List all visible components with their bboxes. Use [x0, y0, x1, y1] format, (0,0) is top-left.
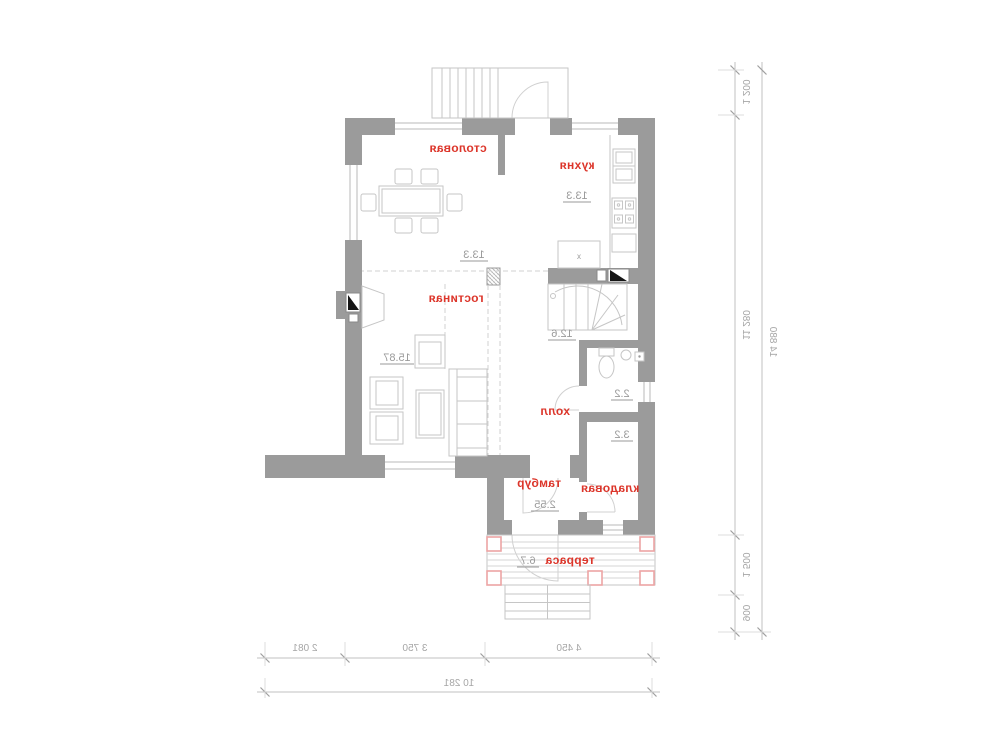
floor-plan-mirrored-canvas: x — [0, 0, 1000, 750]
cabinet — [612, 234, 636, 252]
dining-furniture — [361, 169, 462, 233]
chair — [421, 218, 438, 233]
area-terrace: 6.7 — [520, 555, 535, 567]
wash-basin — [621, 350, 631, 360]
living-furniture — [362, 286, 487, 456]
dim-v-total: 14 880 — [767, 326, 778, 357]
sofa — [449, 369, 487, 456]
dim-h2: 3 750 — [402, 643, 427, 654]
interior-stair — [548, 284, 627, 330]
chair — [361, 194, 376, 211]
label-terrace: терраса — [545, 553, 595, 567]
dim-v4: 900 — [740, 604, 751, 621]
chair — [395, 218, 412, 233]
tv-unit — [362, 286, 384, 328]
window-storage-bottom — [603, 525, 623, 530]
area-storage: 3.2 — [614, 429, 629, 441]
toilet-tank — [599, 348, 614, 356]
entrance-door — [512, 82, 548, 118]
terrace-post — [487, 571, 501, 585]
window-kitchen-top — [572, 123, 618, 129]
terrace-post — [640, 571, 654, 585]
area-wc: 2.2 — [614, 388, 629, 400]
area-hall: 12.6 — [551, 328, 572, 340]
dim-v2: 11 280 — [740, 310, 751, 340]
dim-h-total: 10 281 — [443, 678, 474, 689]
terrace-post — [487, 537, 501, 551]
chair — [421, 169, 438, 184]
window-dining-top — [395, 123, 462, 129]
window-living-bottom — [385, 462, 455, 469]
chair — [447, 194, 462, 211]
wc-fixtures — [599, 348, 644, 378]
dim-h1: 2 081 — [292, 643, 317, 654]
terrace-post — [640, 537, 654, 551]
area-dining: 13.3 — [463, 249, 484, 261]
garden-wall-stub — [265, 455, 345, 478]
terrace-steps — [505, 585, 590, 619]
exterior-walls — [265, 118, 655, 535]
horizontal-dimensions: 4 450 3 750 2 081 10 281 — [257, 642, 660, 698]
label-living: гостиная — [428, 291, 483, 305]
label-hall: холл — [540, 404, 570, 418]
window-wc-side — [644, 382, 650, 402]
label-vestibule: тамбур — [517, 476, 561, 490]
area-living: 15.87 — [383, 352, 411, 364]
vertical-dimensions: 1 200 11 280 1 500 900 14 880 — [718, 62, 778, 640]
dim-v1: 1 200 — [740, 79, 751, 104]
label-storage: кладовая — [581, 481, 640, 495]
chimney-bump — [336, 291, 345, 319]
terrace-post — [588, 571, 602, 585]
chair — [395, 169, 412, 184]
label-dining: столовая — [429, 141, 487, 155]
island-mark: x — [577, 252, 581, 261]
dim-h3: 4 450 — [556, 643, 581, 654]
label-kitchen: кухня — [559, 158, 594, 172]
dim-v3: 1 500 — [740, 552, 751, 577]
toilet-bowl — [599, 356, 614, 378]
floor-plan-drawing: x — [0, 0, 1000, 750]
area-vestibule: 2.55 — [534, 499, 555, 511]
area-kitchen: 13.3 — [566, 190, 587, 202]
window-dining-side — [350, 165, 357, 240]
